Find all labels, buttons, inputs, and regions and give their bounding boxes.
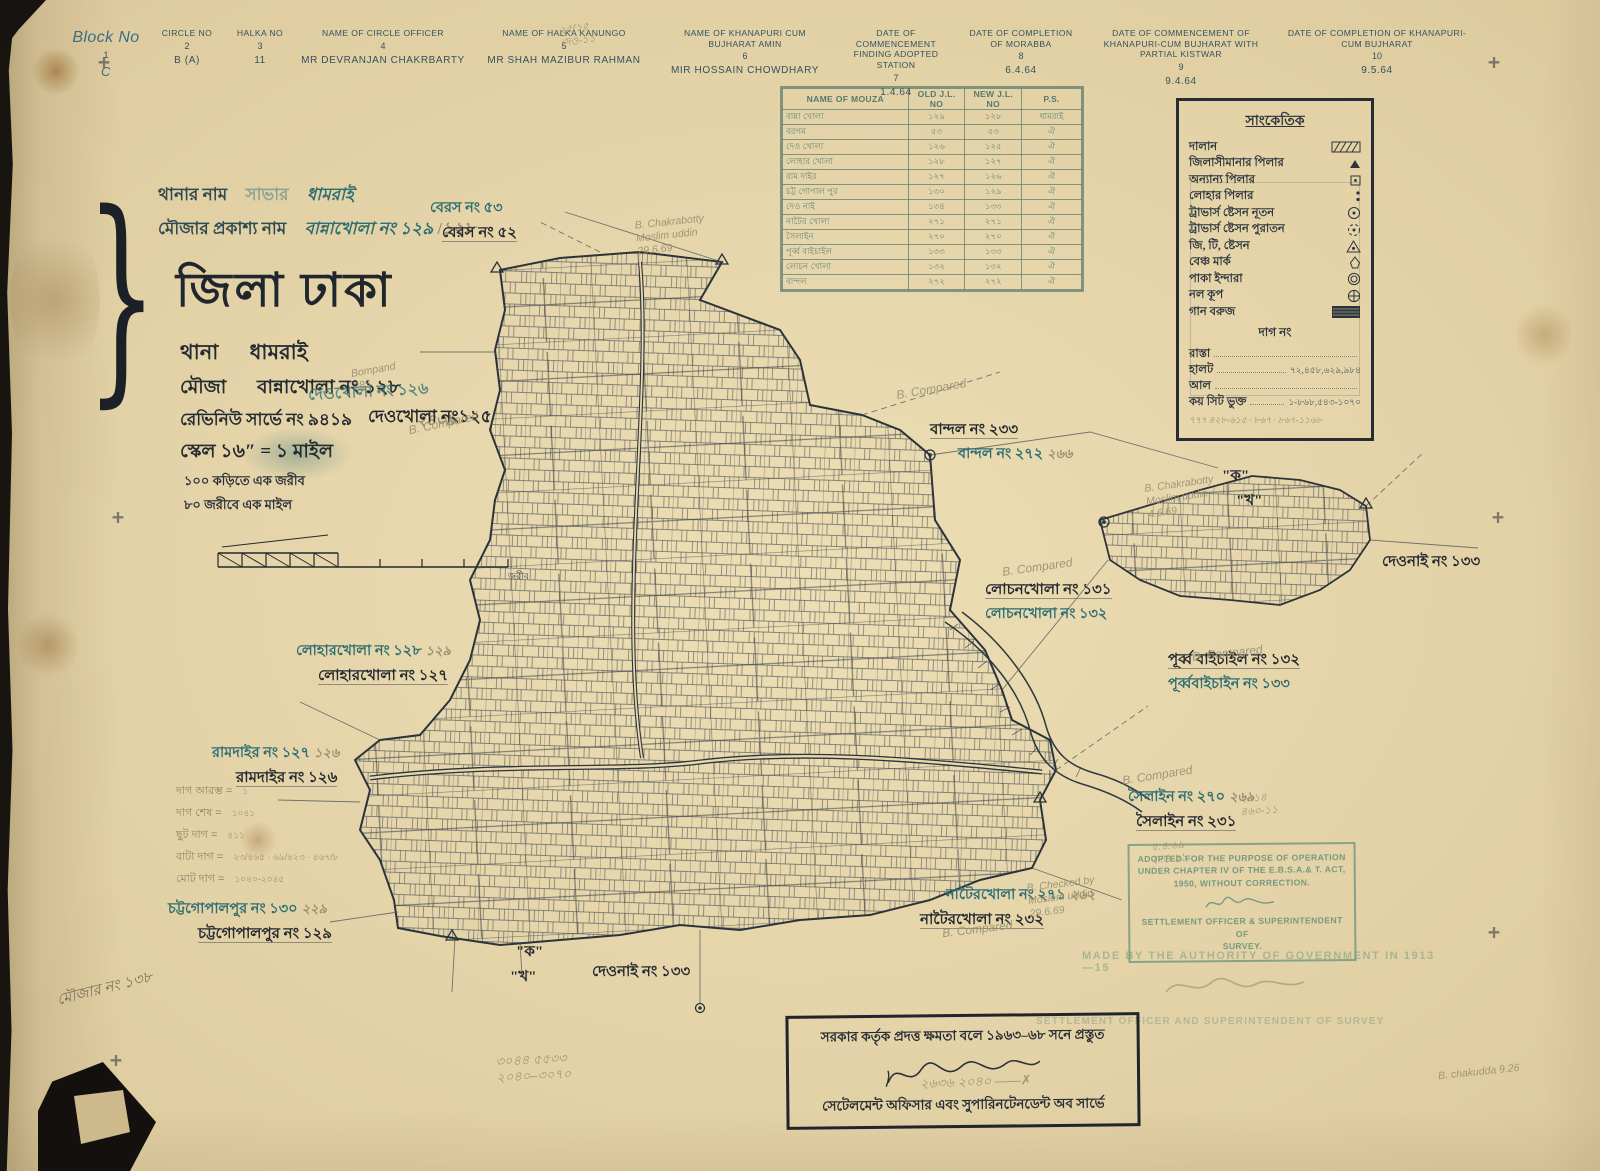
pencil-note: ২৫/১৫ দেও-১১ [558, 19, 596, 50]
label-black: "ক" [516, 944, 543, 960]
note-label: দাগ আরম্ভ = [176, 785, 232, 797]
label-blue: সৈলাইন নং ২৭০ [1128, 789, 1225, 805]
faint-signature [1160, 968, 1310, 1002]
label-black: "ক" [1222, 468, 1249, 484]
note-value: ১ [242, 786, 248, 796]
survey-note: দাগ শেষ =১০৪১ [176, 804, 339, 823]
label-blue: লোহারখোলা নং ১২৮ [296, 643, 422, 659]
authority-line-1: সরকার কর্তৃক প্রদত্ত ক্ষমতা বলে ১৯৬৩–৬৮ … [799, 1023, 1127, 1049]
note-value: ৪১১ [227, 830, 245, 840]
label-blue: বান্দল নং ২৭২ [958, 446, 1043, 462]
note-label: ছুট দাগ = [176, 829, 217, 841]
map-label-bandal: বান্দল নং ২৩৩ বান্দল নং ২৭২ ২৬৬ [930, 418, 1073, 467]
label-black: দেওনাই নং ১৩৩ [1382, 554, 1480, 570]
label-blue: চট্টগোপালপুর নং ১৩০ [168, 901, 298, 917]
note-value: ২৩/৪৬৫ · ৬৯/৪২৩ · ৪৬৭/৮ [233, 852, 338, 862]
label-black: বান্দল নং ২৩৩ [930, 422, 1018, 439]
survey-note: দাগ আরম্ভ =১ [176, 782, 339, 801]
map-label-lochonkhola: লোচনখোলা নং ১৩১ লোচনখোলা নং ১৩২ [985, 578, 1112, 627]
map-label-deonai-right: দেওনাই নং ১৩৩ [1382, 550, 1480, 575]
label-pencil: ২২৯ [302, 901, 327, 916]
label-black: বেরস নং ৫২ [442, 225, 517, 242]
map-label-loharkhola: লোহারখোলা নং ১২৮ ১২৯ লোহারখোলা নং ১২৭ [296, 640, 451, 689]
main-mouza-region [355, 252, 1056, 945]
stamp-line: SETTLEMENT OFFICER & SUPERINTENDENT OF [1136, 914, 1348, 941]
authority-line-2: সেটেলমেন্ট অফিসার এবং সুপারিনটেনডেন্ট অব… [799, 1092, 1127, 1118]
map-label-deonai-bottom: দেওনাই নং ১৩৩ [592, 960, 690, 985]
label-black: চট্টগোপালপুর নং ১২৯ [198, 926, 332, 943]
label-black-2: "খ" [1236, 493, 1263, 509]
pencil-note: B. Checked by Moslem uddin 29.6.69 [1026, 874, 1099, 921]
survey-note: মোট দাগ =১০৪০-২০৪৫ [176, 870, 339, 889]
label-black: লোহারখোলা নং ১২৭ [318, 668, 448, 685]
survey-note: ছুট দাগ =৪১১ [176, 826, 339, 845]
pencil-note: B. Chakrabotty Moslim uddin 29.6.69 [634, 212, 707, 258]
label-blue: রামদাইর নং ১২৭ [212, 745, 310, 761]
label-black-2: "খ" [510, 969, 537, 985]
survey-note: বাটা দাগ =২৩/৪৬৫ · ৬৯/৪২৩ · ৪৬৭/৮ [176, 848, 339, 867]
map-label-chattogopalpur: চট্টগোপালপুর নং ১৩০ ২২৯ চট্টগোপালপুর নং … [168, 898, 332, 947]
pencil-note: ৩০৪৪ ৫৫৩৩ ২০৪০–৩০৭০ [495, 1050, 571, 1086]
label-pencil: ১২৯ [426, 643, 451, 658]
label-black: সৈলাইন নং ২৩১ [1136, 814, 1236, 831]
note-value: ১০৪১ [232, 808, 255, 818]
label-black: দেওনাই নং ১৩৩ [592, 964, 690, 980]
survey-notes: দাগ আরম্ভ =১ দাগ শেষ =১০৪১ ছুট দাগ =৪১১ … [176, 782, 339, 892]
stamp-signature [1202, 891, 1282, 914]
map-label-quote-right: "ক" "খ" [1222, 464, 1263, 514]
authority-box: সরকার কর্তৃক প্রদত্ত ক্ষমতা বলে ১৯৬৩–৬৮ … [785, 1012, 1140, 1130]
label-pencil: ২৬৬ [1047, 446, 1072, 461]
map-label-beras: বেরস নং ৫৩ বেরস নং ৫২ [430, 197, 517, 246]
pencil-note: ২০১৪ ৪৬০-১১ [1239, 791, 1278, 820]
note-value: ১০৪০-২০৪৫ [234, 874, 284, 884]
note-label: মোট দাগ = [176, 873, 224, 885]
pencil-note: ৫.৪.৬৯ দেও-১১ [1151, 839, 1188, 868]
label-blue: বেরস নং ৫৩ [430, 200, 503, 216]
label-pencil: ১২৬ [314, 745, 339, 760]
map-label-quote-bottom: "ক" "খ" [516, 940, 543, 990]
label-black: লোচনখোলা নং ১৩১ [985, 582, 1112, 599]
map-label-soilain: সৈলাইন নং ২৭০ ২৬৯ সৈলাইন নং ২৩১ [1128, 786, 1254, 835]
note-label: বাটা দাগ = [176, 851, 223, 863]
note-label: দাগ শেষ = [176, 807, 222, 819]
stamp-line: 1950, WITHOUT CORRECTION. [1136, 876, 1348, 890]
label-blue: পূর্ব্ববাইচাইন নং ১৩৩ [1168, 676, 1290, 692]
label-blue: লোচনখোলা নং ১৩২ [985, 606, 1107, 622]
cadastral-map-canvas [0, 0, 1600, 1171]
